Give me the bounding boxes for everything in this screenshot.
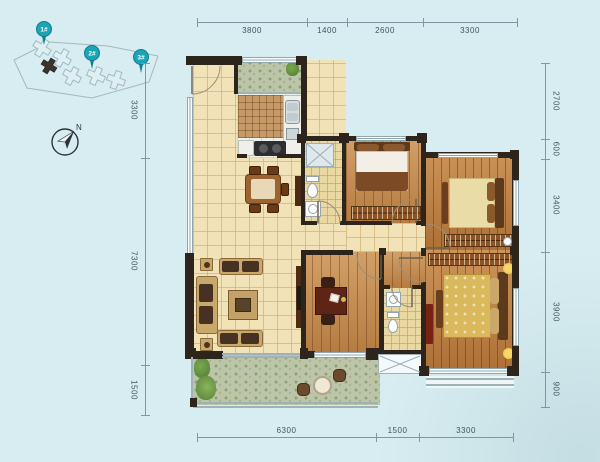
- ac-platform-x-lines: [380, 356, 420, 372]
- dim-line-right: [545, 63, 546, 407]
- master-door-arc: [399, 258, 423, 282]
- dim-label-right: 3900: [552, 302, 561, 322]
- bath2-door-arc: [392, 287, 412, 307]
- dim-line-bottom: [197, 437, 513, 438]
- door-linework-overlay: [0, 0, 600, 462]
- dim-tick: [541, 63, 550, 64]
- study-door-arc: [357, 255, 381, 279]
- dim-tick: [141, 63, 150, 64]
- dim-label-top: 1400: [307, 26, 347, 35]
- dim-tick: [541, 372, 550, 373]
- floorplan-page: 1# 2# 3# N: [0, 0, 600, 462]
- bed3-door-arc: [426, 224, 450, 248]
- dim-tick: [141, 365, 150, 366]
- dim-line-top: [197, 22, 517, 23]
- dim-label-bottom: 6300: [197, 426, 376, 435]
- dim-tick: [513, 433, 514, 442]
- dim-label-right: 900: [552, 382, 561, 397]
- entry-door-arc: [192, 66, 220, 94]
- bed2-door-arc: [392, 199, 416, 223]
- dim-label-right: 3400: [552, 195, 561, 215]
- dim-tick: [517, 18, 518, 27]
- dim-tick: [541, 159, 550, 160]
- dim-label-top: 3800: [197, 26, 307, 35]
- dim-label-top: 2600: [347, 26, 423, 35]
- dim-tick: [141, 415, 150, 416]
- dim-label-bottom: 3300: [419, 426, 513, 435]
- dim-label-left: 3300: [130, 100, 139, 120]
- bath1-door-arc: [318, 201, 340, 223]
- dim-tick: [541, 139, 550, 140]
- dim-label-left: 7300: [130, 251, 139, 271]
- dim-tick: [141, 158, 150, 159]
- dim-label-right: 600: [552, 142, 561, 157]
- dim-tick: [541, 252, 550, 253]
- dim-line-left: [145, 63, 146, 415]
- dim-tick: [541, 407, 550, 408]
- shower-x-lines: [306, 143, 334, 167]
- dim-label-right: 2700: [552, 91, 561, 111]
- dim-label-top: 3300: [423, 26, 517, 35]
- dim-label-bottom: 1500: [376, 426, 419, 435]
- dim-label-left: 1500: [130, 380, 139, 400]
